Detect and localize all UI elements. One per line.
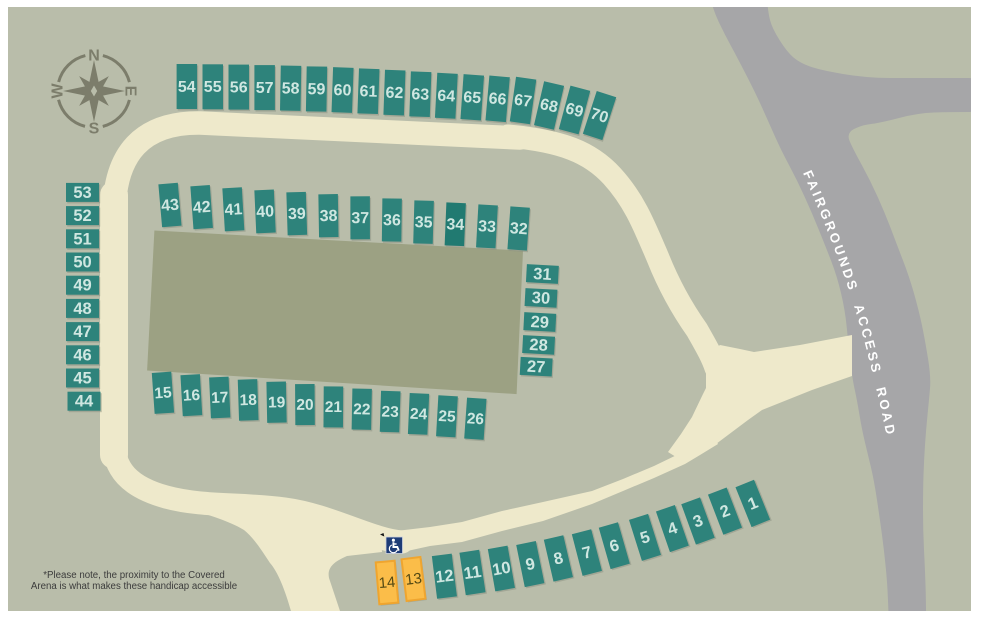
svg-text:37: 37 — [351, 210, 369, 227]
svg-text:33: 33 — [478, 218, 497, 236]
svg-text:E: E — [122, 86, 139, 97]
svg-text:40: 40 — [256, 203, 275, 221]
svg-text:30: 30 — [531, 289, 550, 308]
svg-text:20: 20 — [296, 397, 313, 414]
svg-text:17: 17 — [211, 389, 229, 407]
svg-text:48: 48 — [73, 300, 91, 318]
svg-text:58: 58 — [282, 80, 300, 97]
svg-text:41: 41 — [224, 201, 243, 219]
svg-text:65: 65 — [463, 89, 482, 107]
svg-text:46: 46 — [73, 346, 91, 364]
svg-text:52: 52 — [73, 207, 91, 225]
svg-text:53: 53 — [73, 184, 91, 202]
svg-text:32: 32 — [509, 220, 528, 238]
svg-text:27: 27 — [527, 358, 546, 377]
svg-text:21: 21 — [325, 399, 343, 416]
svg-text:13: 13 — [404, 570, 423, 589]
svg-text:15: 15 — [154, 384, 173, 402]
svg-text:26: 26 — [466, 410, 485, 428]
svg-text:35: 35 — [414, 214, 432, 231]
svg-text:19: 19 — [268, 394, 286, 411]
svg-text:49: 49 — [73, 277, 91, 295]
svg-text:51: 51 — [73, 230, 91, 248]
svg-text:31: 31 — [533, 265, 552, 284]
svg-text:63: 63 — [411, 86, 429, 104]
svg-text:34: 34 — [446, 216, 465, 234]
svg-text:39: 39 — [288, 206, 306, 224]
svg-text:25: 25 — [438, 408, 457, 426]
svg-text:43: 43 — [160, 197, 179, 215]
svg-text:45: 45 — [73, 369, 91, 387]
svg-text:24: 24 — [410, 406, 428, 424]
svg-text:64: 64 — [437, 88, 456, 106]
svg-text:61: 61 — [359, 83, 377, 101]
svg-text:50: 50 — [73, 253, 91, 271]
svg-text:16: 16 — [182, 387, 201, 405]
svg-text:54: 54 — [178, 79, 196, 96]
svg-text:36: 36 — [383, 212, 401, 229]
svg-text:29: 29 — [530, 313, 549, 332]
svg-text:12: 12 — [434, 567, 454, 587]
svg-text:67: 67 — [513, 92, 533, 111]
svg-text:23: 23 — [381, 403, 399, 421]
svg-text:28: 28 — [529, 336, 548, 355]
svg-text:42: 42 — [192, 199, 211, 217]
svg-text:60: 60 — [333, 82, 351, 100]
svg-text:62: 62 — [385, 85, 403, 103]
svg-text:10: 10 — [491, 558, 512, 579]
svg-text:38: 38 — [319, 208, 337, 225]
svg-text:N: N — [88, 47, 100, 64]
svg-text:57: 57 — [256, 80, 274, 97]
svg-text:22: 22 — [353, 401, 371, 418]
svg-text:66: 66 — [488, 90, 507, 108]
svg-text:S: S — [89, 120, 100, 137]
svg-text:44: 44 — [75, 393, 94, 411]
svg-text:W: W — [49, 83, 66, 99]
svg-text:55: 55 — [204, 79, 222, 96]
svg-text:11: 11 — [463, 563, 483, 583]
svg-text:59: 59 — [307, 81, 325, 98]
svg-text:56: 56 — [230, 79, 248, 96]
svg-text:14: 14 — [378, 574, 396, 592]
svg-text:18: 18 — [239, 392, 257, 410]
svg-text:47: 47 — [73, 323, 91, 341]
